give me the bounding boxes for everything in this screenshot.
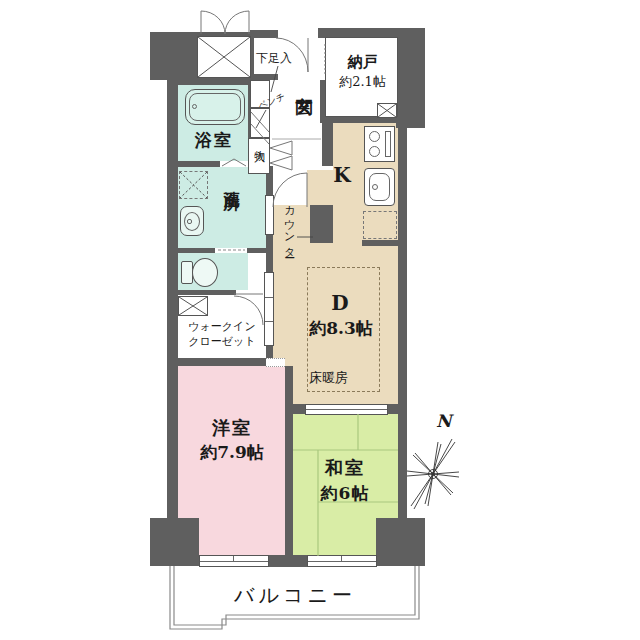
wall-window-stub (268, 555, 308, 567)
bath-door-opening (220, 161, 248, 167)
japanese-room-sill (305, 404, 388, 415)
bathtub-icon (185, 89, 245, 125)
wall-bath-wash (178, 161, 220, 167)
nando-size: 約2.1帖 (325, 75, 400, 90)
shoe-cabinet-label: 下足入 (256, 52, 292, 66)
wall-right-top-block (396, 28, 425, 128)
stove-icon (364, 126, 395, 162)
bifold-door-icon (270, 141, 292, 170)
pipe-space-wic (178, 296, 208, 316)
compass-star (407, 439, 459, 509)
wic-label-line2: クローゼット (180, 336, 264, 349)
dining-size: 約8.3帖 (302, 319, 380, 339)
wall-entrance-kitchen (322, 118, 333, 166)
wall-bath-top (178, 78, 252, 85)
japanese-window (307, 555, 377, 567)
washroom-door-panel (265, 195, 274, 235)
floor-plan: 浴室 洗面所 玄関 下足入 ベンチ 物入 納戸 約2.1帖 K カウンター D … (0, 0, 640, 640)
nando-label: 納戸 (327, 54, 398, 71)
bathroom-label: 浴室 (184, 131, 244, 151)
refrigerator-space (363, 211, 397, 239)
basin-icon (180, 206, 204, 236)
washing-machine-icon (179, 171, 208, 199)
western-window (199, 555, 269, 567)
washroom-label: 洗面所 (222, 178, 240, 184)
floor-heating-label: 床暖房 (309, 371, 348, 386)
pillar-bottom-right (376, 518, 425, 566)
wall-top-strip (250, 30, 278, 38)
double-door-icon (201, 11, 249, 34)
storage-box (248, 138, 270, 174)
counter-label: カウンター (282, 198, 295, 253)
western-door-opening (266, 358, 285, 367)
toilet-bowl-icon (192, 258, 218, 287)
wall-counter-stub (310, 205, 333, 243)
balcony-label: バルコニー (228, 584, 362, 607)
meter-box-right (377, 103, 397, 118)
wall-left (167, 80, 178, 518)
wall-toilet-wic (178, 290, 236, 295)
entrance-label: 玄関 (294, 84, 314, 88)
wall-west-japan-divider (285, 366, 293, 556)
wall-wic-bottom (178, 358, 266, 366)
wic-door-opening (236, 290, 264, 295)
kitchen-sink-icon (364, 168, 395, 206)
wall-wash-right-b (266, 235, 273, 252)
sliding-door-panels (264, 272, 274, 346)
wall-d-bottom-right-stub (388, 404, 407, 414)
toilet-door-opening (215, 248, 247, 253)
japanese-room-label: 和室 (315, 458, 375, 479)
wic-label-line1: ウォークイン (180, 321, 264, 334)
meter-box-top-left (197, 36, 251, 78)
kitchen-label: K (328, 164, 356, 187)
japanese-room-size: 約6帖 (310, 484, 380, 504)
bench-box (250, 108, 270, 138)
western-room-size: 約7.9帖 (190, 443, 274, 463)
storage-label: 物入 (252, 141, 265, 143)
western-room-label: 洋室 (202, 418, 262, 439)
wall-right (398, 128, 407, 518)
wall-d-bottom-left-stub (285, 404, 305, 414)
compass-n-label: N (436, 412, 452, 432)
wall-kitchen-bottom-stub (362, 240, 398, 246)
pillar-bottom-left (150, 518, 199, 566)
dining-label: D (326, 292, 354, 315)
